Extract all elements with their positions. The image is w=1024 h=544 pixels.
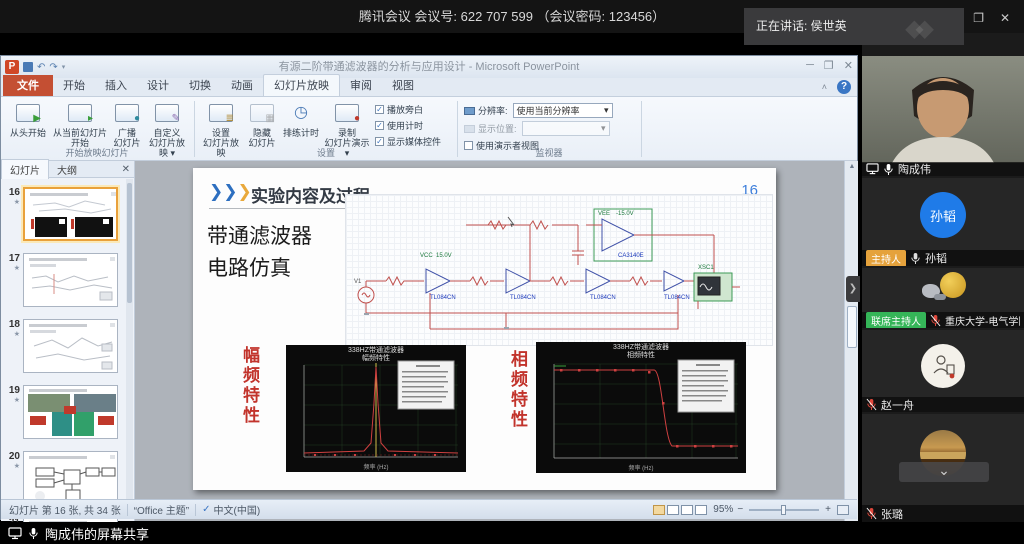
tab-insert[interactable]: 插入 bbox=[95, 75, 137, 96]
slide-thumbnail-19[interactable]: 19★ bbox=[1, 385, 127, 439]
tab-review[interactable]: 审阅 bbox=[340, 75, 382, 96]
hide-slide-icon: ▦ bbox=[247, 100, 277, 126]
share-banner: 陶成伟的屏幕共享 bbox=[0, 522, 1024, 544]
tab-animations[interactable]: 动画 bbox=[221, 75, 263, 96]
dropdown-icon: ▾ bbox=[604, 105, 609, 116]
ppt-window-controls: ─ ❐ ✕ bbox=[806, 59, 853, 72]
normal-view-button[interactable] bbox=[653, 505, 665, 515]
participant-tile-cqu[interactable]: 联席主持人 重庆大学-电气学院... bbox=[862, 268, 1024, 328]
theme-status: “Office 主题” bbox=[134, 502, 189, 517]
participant-namebar: 联席主持人 重庆大学-电气学院... bbox=[862, 312, 1024, 328]
scrollbar-thumb[interactable] bbox=[847, 306, 857, 348]
phase-plot-canvas bbox=[536, 342, 746, 473]
video-panel-collapse-handle[interactable]: ❯ bbox=[846, 276, 860, 302]
ppt-statusbar: 幻灯片 第 16 张, 共 34 张 “Office 主题” ✓ 中文(中国) … bbox=[1, 499, 857, 519]
play-narration-checkbox[interactable]: ✓播放旁白 bbox=[375, 103, 441, 116]
broadcast-globe-icon: ● bbox=[112, 100, 142, 126]
participant-namebar: 陶成伟 bbox=[862, 162, 1024, 176]
caption-line2: 电路仿真 bbox=[207, 252, 291, 282]
mic-on-icon bbox=[883, 163, 894, 176]
slide-thumbnail-16[interactable]: 16★ bbox=[1, 187, 127, 241]
slideshow-view-button[interactable] bbox=[695, 505, 707, 515]
cohost-badge: 联席主持人 bbox=[866, 312, 926, 329]
transition-star-icon: ★ bbox=[1, 264, 20, 272]
language-status[interactable]: 中文(中国) bbox=[213, 502, 260, 517]
custom-show-icon: ✎ bbox=[152, 100, 182, 126]
participant-tile-suntao[interactable]: 孙韬 主持人 孙韬 bbox=[862, 178, 1024, 266]
ppt-minimize-button[interactable]: ─ bbox=[806, 59, 814, 72]
label-vcc: VCC bbox=[420, 253, 433, 259]
group-start-slideshow: 开始放映幻灯片 bbox=[1, 146, 193, 159]
screen-share-icon bbox=[8, 527, 22, 540]
tab-transitions[interactable]: 切换 bbox=[179, 75, 221, 96]
screen-share-icon bbox=[866, 163, 879, 175]
thumb19-art bbox=[24, 386, 118, 439]
label-opamp: TL084CN bbox=[664, 295, 690, 301]
participant-name: 孙韬 bbox=[925, 250, 947, 266]
amplitude-plot: 338HZ带通滤波器幅频特性 bbox=[286, 345, 466, 472]
participant-namebar: 张璐 bbox=[862, 505, 1024, 522]
mic-muted-icon bbox=[866, 507, 877, 520]
slides-panel: 幻灯片 大纲 ✕ 16★ bbox=[1, 161, 135, 521]
avatar-initials: 孙韬 bbox=[920, 192, 966, 238]
ppt-close-button[interactable]: ✕ bbox=[844, 59, 853, 72]
mic-on-icon bbox=[28, 527, 39, 540]
zoom-percent[interactable]: 95% bbox=[713, 504, 733, 515]
label-v1: V1 bbox=[354, 279, 361, 285]
circuit-schematic: V1 VCC 15.0V VEE -15.0V TL084CN TL084CN … bbox=[345, 194, 773, 346]
participant-name: 陶成伟 bbox=[898, 161, 931, 176]
show-on-label: 显示位置: bbox=[478, 122, 517, 135]
speaking-toast-text: 正在讲话: 侯世英 bbox=[756, 19, 847, 33]
checkbox-checked-icon: ✓ bbox=[375, 105, 384, 114]
setup-show-icon: ≣ bbox=[206, 100, 236, 126]
share-banner-text: 陶成伟的屏幕共享 bbox=[45, 524, 149, 543]
sorter-view-button[interactable] bbox=[667, 505, 679, 515]
label-opamp: TL084CN bbox=[430, 295, 456, 301]
panel-scrollbar[interactable] bbox=[126, 179, 133, 519]
checkbox-checked-icon: ✓ bbox=[375, 137, 384, 146]
zoom-in-icon[interactable]: + bbox=[825, 504, 831, 515]
hide-slide-button[interactable]: ▦ 隐藏 幻灯片 bbox=[245, 100, 279, 148]
dropdown-icon: ▾ bbox=[601, 123, 606, 134]
slide-count-status: 幻灯片 第 16 张, 共 34 张 bbox=[9, 502, 121, 517]
label-vee-val: -15.0V bbox=[616, 211, 634, 217]
participant-video bbox=[862, 56, 1024, 163]
ribbon-divider bbox=[457, 101, 458, 157]
record-icon: ● bbox=[332, 100, 362, 126]
spellcheck-icon[interactable]: ✓ bbox=[202, 504, 210, 515]
powerpoint-window: P ↶ ↷ ▾ 有源二阶带通滤波器的分析与应用设计 - Microsoft Po… bbox=[0, 55, 858, 520]
transition-star-icon: ★ bbox=[1, 462, 20, 470]
ribbon-divider bbox=[641, 101, 642, 157]
label-vee: VEE bbox=[598, 211, 610, 217]
meeting-close-button[interactable]: ✕ bbox=[1000, 9, 1010, 27]
mic-muted-icon bbox=[866, 398, 877, 411]
label-opamp: TL084CN bbox=[590, 295, 616, 301]
tab-design[interactable]: 设计 bbox=[137, 75, 179, 96]
use-timings-checkbox[interactable]: ✓使用计时 bbox=[375, 119, 441, 132]
participants-panel: 陶成伟 孙韬 主持人 孙韬 bbox=[862, 33, 1024, 522]
tab-outline[interactable]: 大纲 bbox=[49, 160, 85, 179]
avatar-astronaut bbox=[920, 272, 966, 312]
caption-line1: 带通滤波器 bbox=[207, 220, 312, 250]
participant-tile-zhaoyizhou[interactable]: 赵一舟 bbox=[862, 330, 1024, 412]
participant-name: 张璐 bbox=[881, 506, 903, 522]
avatar-sketch bbox=[921, 344, 965, 388]
resolution-label: 分辨率: bbox=[478, 104, 508, 117]
slide-thumbnail-17[interactable]: 17★ bbox=[1, 253, 127, 307]
ribbon-tab-strip: 文件 开始 插入 设计 切换 动画 幻灯片放映 审阅 视图 bbox=[1, 78, 857, 97]
amplitude-plot-canvas bbox=[286, 345, 466, 472]
slides-panel-tabs: 幻灯片 大纲 ✕ bbox=[1, 161, 134, 178]
group-monitors: 监视器 bbox=[459, 146, 639, 159]
thumb20-art bbox=[24, 452, 118, 505]
label-opamp: TL084CN bbox=[510, 295, 536, 301]
zoom-slider[interactable] bbox=[749, 509, 819, 511]
title-chevrons-icon: ❯❯❯ bbox=[209, 182, 252, 202]
label-scope: XSC1 bbox=[698, 265, 714, 271]
transition-star-icon: ★ bbox=[1, 330, 20, 338]
amplitude-label: 幅频特性 bbox=[237, 346, 262, 456]
transition-star-icon: ★ bbox=[1, 396, 20, 404]
from-current-slide-button[interactable]: ▸ 从当前幻灯片 开始 bbox=[51, 100, 109, 148]
participant-tile-video[interactable]: 陶成伟 bbox=[862, 56, 1024, 176]
collapse-tiles-button[interactable]: ⌄ bbox=[899, 462, 989, 482]
resolution-icon bbox=[464, 107, 475, 115]
slide-thumbnail-20[interactable]: 20★ bbox=[1, 451, 127, 505]
slide-canvas-area: ❯❯❯ 实验内容及过程 16 带通滤波器 电路仿真 bbox=[135, 161, 844, 521]
resolution-select[interactable]: 使用当前分辨率▾ bbox=[513, 103, 613, 118]
group-setup: 设置 bbox=[197, 146, 455, 159]
phase-plot: 338HZ带通滤波器相频特性 bbox=[536, 342, 746, 473]
mic-on-icon bbox=[910, 252, 921, 265]
help-icon[interactable]: ? bbox=[837, 80, 851, 94]
zoom-slider-thumb[interactable] bbox=[781, 505, 786, 515]
show-on-icon bbox=[464, 125, 475, 133]
watermark-logo-icon: ◆◆ bbox=[905, 10, 926, 47]
scroll-up-icon: ▲ bbox=[845, 163, 859, 170]
screen: 腾讯会议 会议号: 622 707 599 （会议密码: 123456） ─ ❐… bbox=[0, 0, 1024, 544]
thumb18-art bbox=[24, 320, 118, 373]
tab-file[interactable]: 文件 bbox=[3, 75, 53, 96]
mic-muted-icon bbox=[930, 314, 941, 327]
rehearse-timings-button[interactable]: ◷ 排练计时 bbox=[281, 100, 321, 138]
participant-namebar: 赵一舟 bbox=[862, 397, 1024, 412]
clock-icon: ◷ bbox=[286, 100, 316, 126]
ribbon-collapse-icon[interactable]: ˄ bbox=[822, 82, 827, 92]
panel-close-icon[interactable]: ✕ bbox=[122, 164, 130, 175]
tab-home[interactable]: 开始 bbox=[53, 75, 95, 96]
reading-view-button[interactable] bbox=[681, 505, 693, 515]
play-from-start-icon: ▶ bbox=[13, 100, 43, 126]
speaking-toast: 正在讲话: 侯世英 ◆◆ bbox=[744, 8, 964, 45]
ribbon: ▶ 从头开始 ▸ 从当前幻灯片 开始 ● 广播 幻灯片 ✎ 自定义 幻灯片放映 … bbox=[1, 97, 857, 161]
zoom-out-icon[interactable]: − bbox=[737, 504, 743, 515]
meeting-maximize-button[interactable]: ❐ bbox=[973, 9, 984, 27]
play-from-current-icon: ▸ bbox=[65, 100, 95, 126]
participant-name: 重庆大学-电气学院... bbox=[945, 313, 1020, 328]
broadcast-slideshow-button[interactable]: ● 广播 幻灯片 bbox=[111, 100, 143, 148]
participant-name: 赵一舟 bbox=[881, 397, 914, 413]
host-badge: 主持人 bbox=[866, 250, 906, 267]
thumb17-art bbox=[24, 254, 118, 307]
thumb16-art bbox=[25, 189, 118, 241]
slide-scrollbar[interactable]: ▲ ▲ ▼ bbox=[844, 161, 858, 521]
phase-label: 相频特性 bbox=[505, 350, 530, 460]
slide-thumbnail-18[interactable]: 18★ bbox=[1, 319, 127, 373]
fit-to-window-button[interactable] bbox=[837, 505, 849, 515]
participant-namebar: 主持人 孙韬 bbox=[862, 250, 1024, 266]
show-on-select: ▾ bbox=[522, 121, 610, 136]
label-opamp-out: CA3140E bbox=[618, 253, 644, 259]
tab-slides-thumbnails[interactable]: 幻灯片 bbox=[1, 159, 49, 179]
chevron-down-icon: ⌄ bbox=[938, 462, 950, 478]
from-beginning-button[interactable]: ▶ 从头开始 bbox=[7, 100, 49, 138]
tab-slideshow[interactable]: 幻灯片放映 bbox=[263, 74, 340, 96]
slide-16: ❯❯❯ 实验内容及过程 16 带通滤波器 电路仿真 bbox=[193, 168, 776, 490]
transition-star-icon: ★ bbox=[1, 198, 20, 206]
checkbox-checked-icon: ✓ bbox=[375, 121, 384, 130]
tab-view[interactable]: 视图 bbox=[382, 75, 424, 96]
label-vcc-val: 15.0V bbox=[436, 253, 452, 259]
ppt-restore-button[interactable]: ❐ bbox=[824, 59, 834, 72]
ribbon-divider bbox=[194, 101, 195, 157]
